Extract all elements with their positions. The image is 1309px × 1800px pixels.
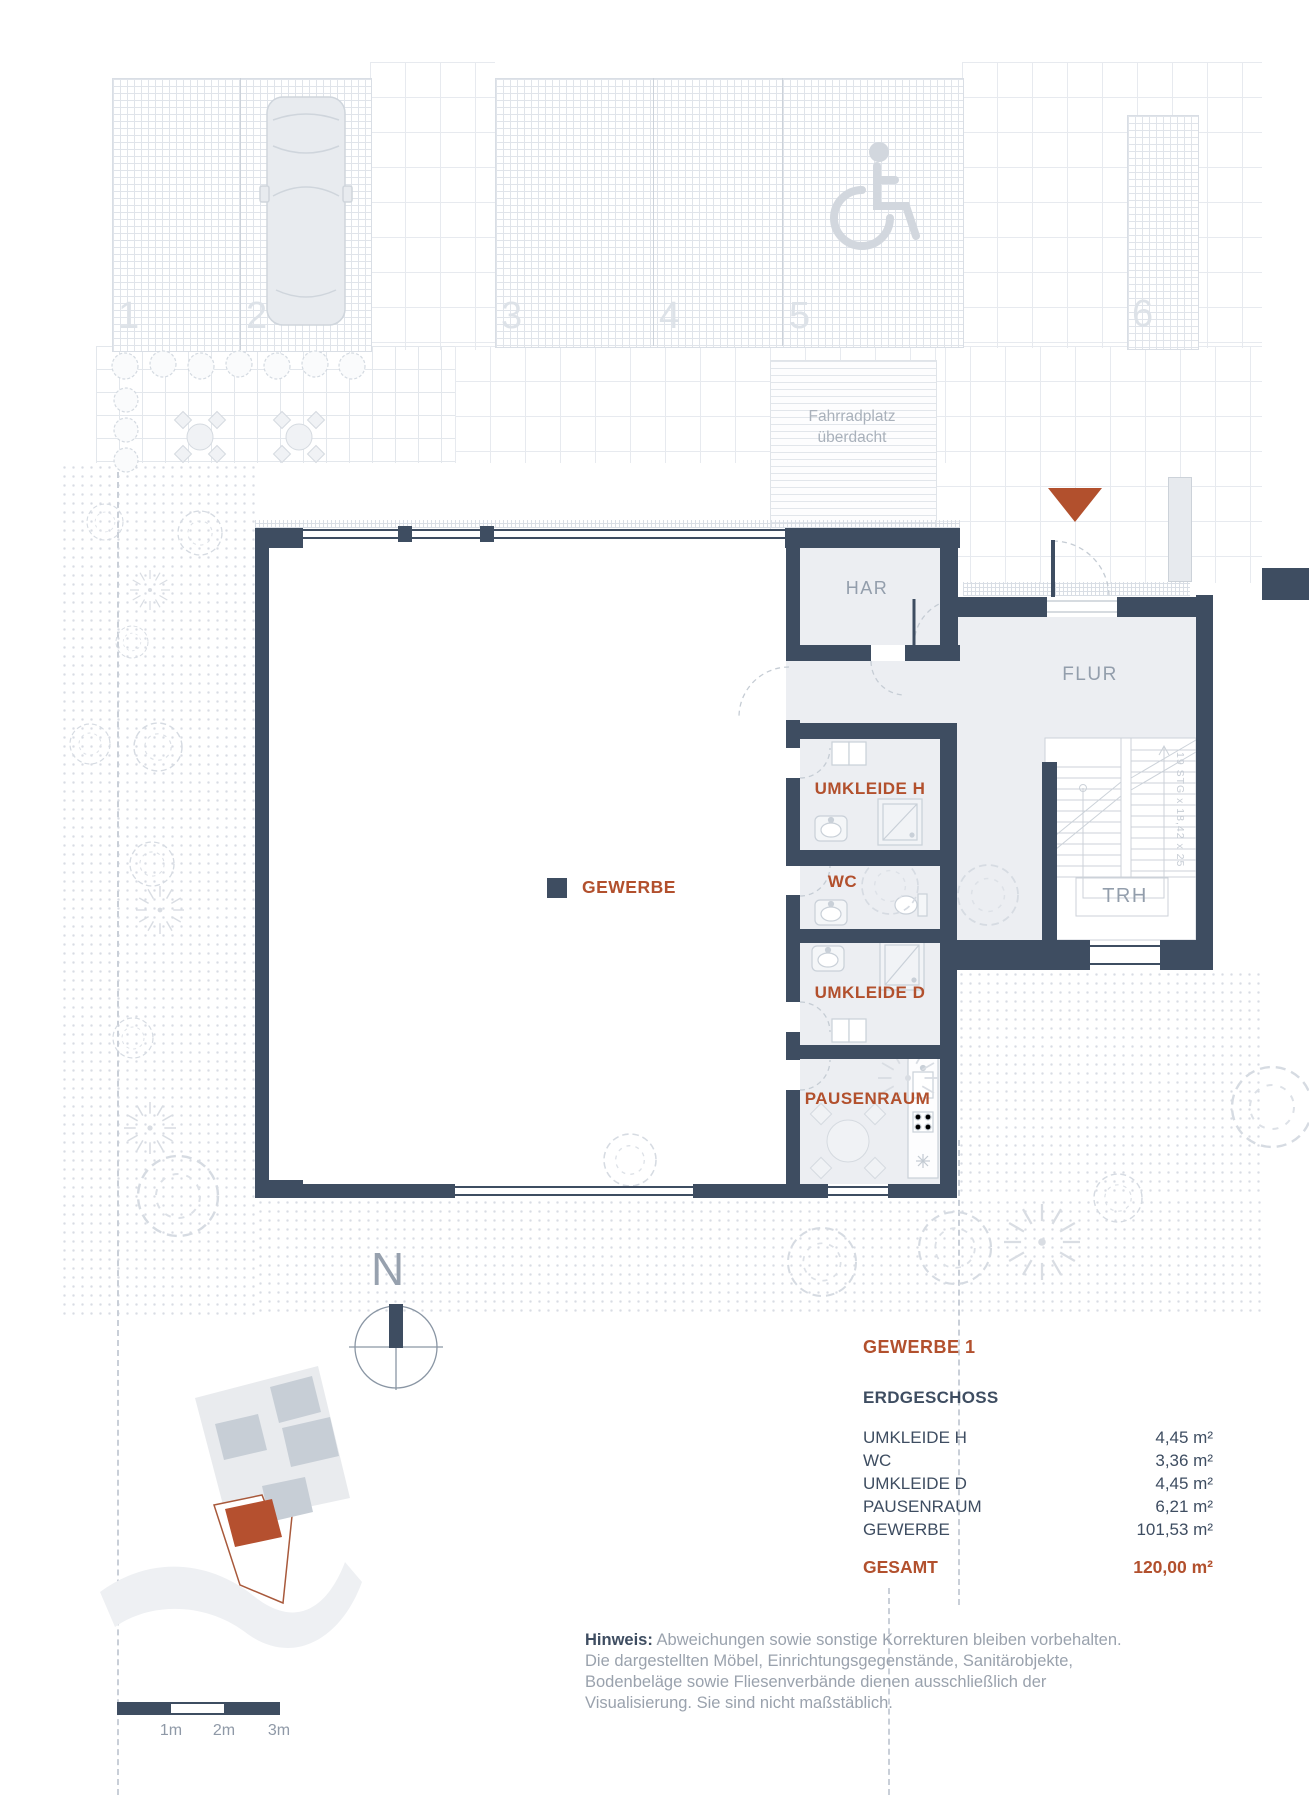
area-row: WC3,36 m²: [863, 1451, 1213, 1474]
scale-label: 1m: [144, 1722, 198, 1740]
hedge: [112, 351, 365, 472]
wall-segment: [255, 528, 269, 1198]
floor-plan-page: 1 2 3 4 5 6 Fahrradplatz überdacht: [0, 0, 1309, 1800]
area-row: PAUSENRAUM6,21 m²: [863, 1497, 1213, 1520]
window: [455, 1186, 693, 1196]
room-label-umkleide-d: UMKLEIDE D: [795, 983, 945, 1003]
car: [260, 97, 352, 325]
area-row-value: 4,45 m²: [1155, 1474, 1213, 1497]
note-label: Hinweis:: [585, 1631, 653, 1649]
gewerbe-square-icon: [547, 878, 567, 898]
area-row-value: 6,21 m²: [1155, 1497, 1213, 1520]
room-label-har: HAR: [830, 578, 904, 599]
scale-bar-segment: [117, 1702, 171, 1715]
scale-bar-segment: [224, 1702, 280, 1715]
wall-segment: [786, 850, 957, 866]
area-row-name: UMKLEIDE H: [863, 1428, 967, 1451]
wall-segment: [786, 929, 957, 943]
wall-segment: [1117, 597, 1196, 617]
room-label-flur: FLUR: [1040, 664, 1140, 686]
staircase: 19 STG x 18,42 x 25: [1045, 738, 1196, 940]
wall-segment: [1196, 595, 1213, 970]
room-label-gewerbe: GEWERBE: [582, 877, 712, 898]
room-label-trh: TRH: [1085, 885, 1165, 908]
area-row: UMKLEIDE H4,45 m²: [863, 1428, 1213, 1451]
note-text: Abweichungen sowie sonstige Korrekturen …: [585, 1631, 1122, 1712]
terrace-table: [175, 412, 226, 463]
wall-pillar: [398, 526, 412, 542]
area-row-value: 3,36 m²: [1155, 1451, 1213, 1474]
floor-title: ERDGESCHOSS: [863, 1388, 1213, 1408]
entrance-marker-triangle: [1048, 488, 1102, 522]
room-label-umkleide-h: UMKLEIDE H: [795, 779, 945, 799]
unit-title: GEWERBE 1: [863, 1337, 1213, 1358]
area-row: UMKLEIDE D4,45 m²: [863, 1474, 1213, 1497]
wall-segment: [888, 1184, 957, 1198]
area-row-name: WC: [863, 1451, 891, 1474]
scale-label: 3m: [251, 1722, 307, 1740]
wall-segment: [940, 548, 958, 645]
wall-segment: [905, 645, 960, 661]
wall-segment: [785, 528, 960, 548]
window: [828, 1186, 888, 1196]
disclaimer-note: Hinweis: Abweichungen sowie sonstige Kor…: [585, 1630, 1141, 1714]
wall-pillar: [480, 526, 494, 542]
total-value: 120,00 m²: [1133, 1557, 1213, 1578]
scale-label: 2m: [197, 1722, 251, 1740]
wall-segment: [786, 645, 800, 660]
wheelchair-icon: [834, 142, 916, 246]
window: [1090, 945, 1160, 965]
wall-segment: [255, 528, 303, 548]
terrace-table: [274, 412, 325, 463]
break-room-table: [810, 1103, 885, 1178]
site-key-plan: [100, 1366, 362, 1648]
area-row-value: 4,45 m²: [1155, 1428, 1213, 1451]
wall-segment: [957, 940, 1090, 970]
area-total-row: GESAMT 120,00 m²: [863, 1557, 1213, 1578]
stair-note: 19 STG x 18,42 x 25: [1174, 752, 1186, 867]
wall-segment: [786, 720, 800, 748]
area-row-name: UMKLEIDE D: [863, 1474, 967, 1497]
wall-segment: [693, 1184, 828, 1198]
window: [303, 529, 785, 539]
scale-bar-segment: [171, 1702, 224, 1715]
entrance-sill: [1047, 597, 1117, 617]
room-label-pausenraum: PAUSENRAUM: [790, 1089, 945, 1109]
wall-segment: [1042, 762, 1057, 940]
wall-segment: [800, 723, 940, 739]
area-row: GEWERBE101,53 m²: [863, 1520, 1213, 1543]
legend: GEWERBE 1 ERDGESCHOSS UMKLEIDE H4,45 m² …: [863, 1337, 1213, 1578]
area-row-name: PAUSENRAUM: [863, 1497, 982, 1520]
north-label: N: [371, 1242, 404, 1296]
neighbour-wall-segment: [1262, 568, 1309, 600]
wall-segment: [786, 548, 800, 645]
wall-segment: [786, 1045, 957, 1059]
area-row-name: GEWERBE: [863, 1520, 950, 1543]
area-table: UMKLEIDE H4,45 m² WC3,36 m² UMKLEIDE D4,…: [863, 1428, 1213, 1543]
wall-segment: [1160, 940, 1213, 970]
wall-segment: [255, 1184, 455, 1198]
area-row-value: 101,53 m²: [1136, 1520, 1213, 1543]
total-label: GESAMT: [863, 1557, 938, 1578]
north-compass: [349, 1304, 443, 1390]
room-label-wc: WC: [810, 872, 875, 892]
wall-segment: [957, 597, 1047, 617]
